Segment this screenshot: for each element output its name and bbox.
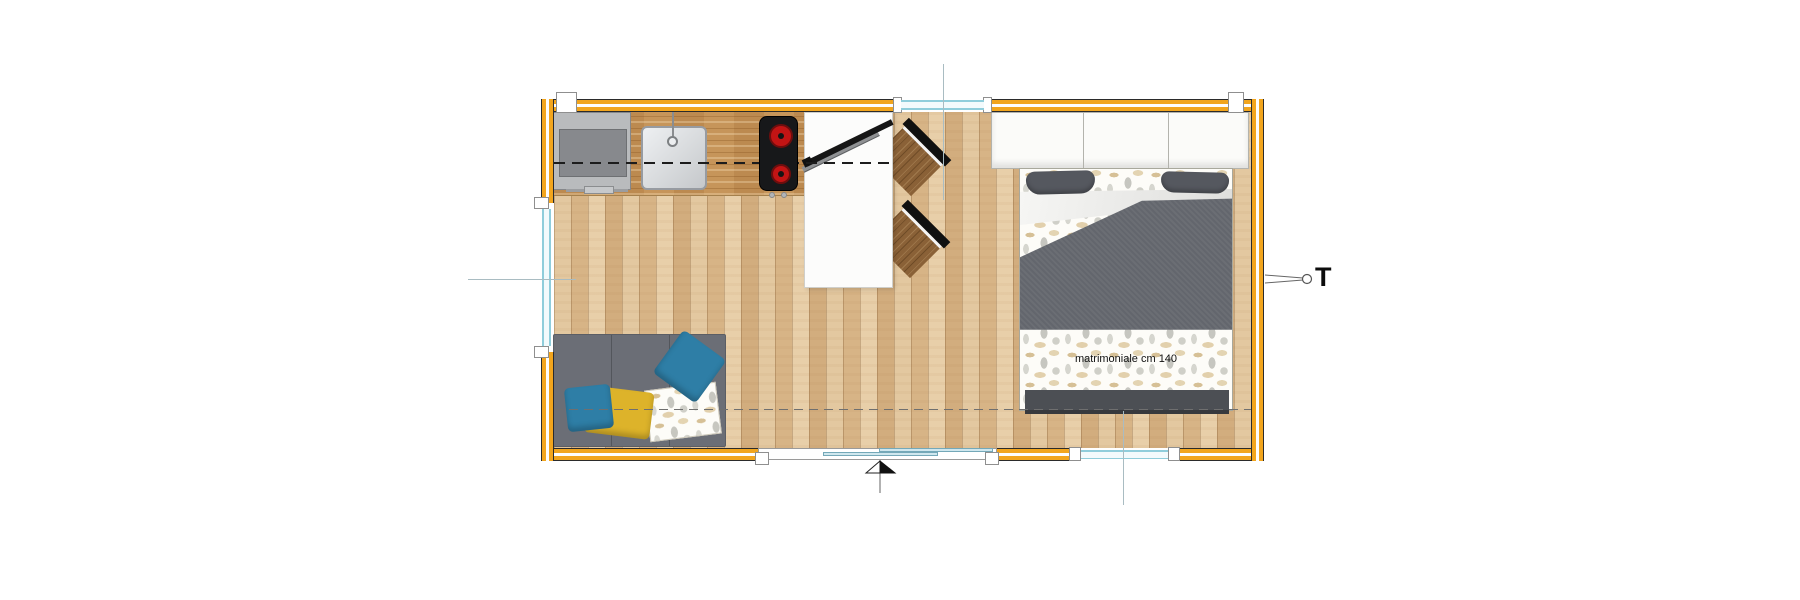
window-jamb — [534, 197, 549, 209]
appliance-handle — [584, 186, 614, 194]
faucet-icon — [672, 112, 674, 138]
burner-icon — [769, 124, 793, 148]
wall-top — [577, 99, 893, 112]
wall-joint — [1228, 92, 1244, 113]
window-jamb — [983, 97, 992, 113]
axis-line-bottom — [1123, 411, 1124, 505]
ladder-rail — [805, 119, 894, 166]
bed-pillow — [1161, 171, 1230, 194]
window-bottom — [1081, 450, 1168, 459]
section-dashed-line — [554, 409, 1251, 410]
wall-left — [541, 99, 554, 203]
axis-line-top — [943, 64, 944, 200]
window-jamb — [1168, 447, 1180, 461]
double-bed: matrimoniale cm 140 — [1019, 168, 1233, 411]
wardrobe — [991, 112, 1249, 169]
thermostat-label: T — [1315, 262, 1332, 293]
wall-bottom — [997, 448, 1078, 461]
kitchen-appliance — [553, 112, 631, 190]
wardrobe-divider — [1083, 113, 1084, 168]
axis-line-left — [468, 279, 576, 280]
blue-cushion — [564, 384, 614, 433]
window-jamb — [1069, 447, 1081, 461]
wardrobe-divider — [1168, 113, 1169, 168]
cooktop-knob-icon — [769, 192, 775, 198]
bed-size-label: matrimoniale cm 140 — [1020, 353, 1232, 365]
kitchen-axis-dashed-line — [554, 162, 893, 164]
cooktop — [759, 116, 798, 191]
cooktop-knob-icon — [781, 192, 787, 198]
window-jamb — [534, 346, 549, 358]
entrance-arrow-icon — [866, 461, 895, 493]
wall-right — [1251, 99, 1264, 461]
wall-bottom — [541, 448, 758, 461]
burner-icon — [771, 164, 791, 184]
door-jamb — [755, 452, 769, 465]
door-jamb — [985, 452, 999, 465]
sliding-door-panel — [823, 452, 938, 456]
bed-footboard — [1025, 390, 1229, 414]
appliance-door — [559, 129, 627, 177]
floor-plan-canvas: matrimoniale cm 140 — [0, 0, 1800, 600]
bed-pillow — [1026, 170, 1096, 195]
thermostat-callout-icon — [1265, 275, 1312, 284]
window-left — [542, 209, 551, 346]
wall-left — [541, 352, 554, 461]
wall-top — [992, 99, 1228, 112]
sliding-door-panel — [879, 448, 993, 452]
faucet-head-icon — [667, 136, 678, 147]
wall-joint — [556, 92, 577, 113]
